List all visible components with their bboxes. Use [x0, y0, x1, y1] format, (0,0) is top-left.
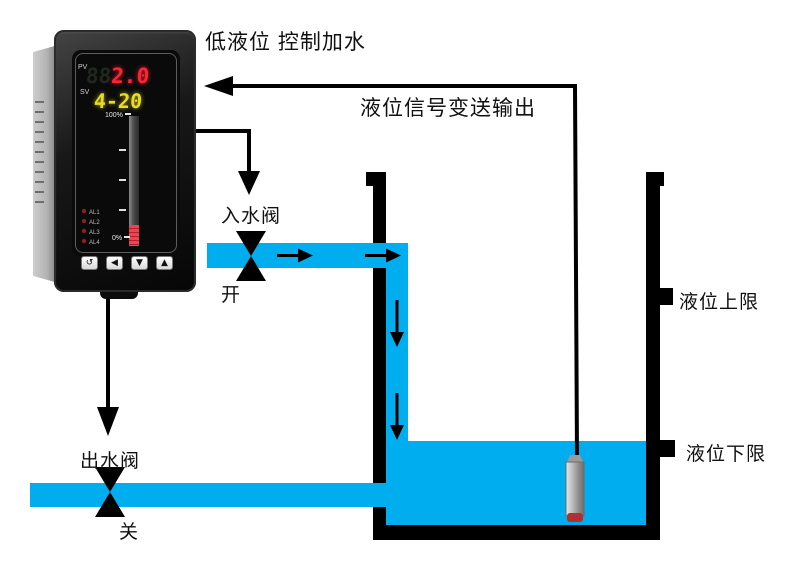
bar-top-label: 100% [105, 112, 131, 119]
led-al2: AL2 [82, 218, 100, 228]
level-control-diagram: PV 882.0 SV 4-20 100% 0% AL1 AL2 AL3 AL4… [0, 0, 790, 566]
bar-bottom-label: 0% [112, 235, 130, 242]
down-button[interactable]: ▼ [131, 256, 148, 270]
lower-limit-label: 液位下限 [686, 439, 766, 466]
al4-led-icon [82, 239, 86, 243]
level-sensor [566, 455, 584, 522]
device-front-panel: PV 882.0 SV 4-20 100% 0% AL1 AL2 AL3 AL4 [72, 50, 180, 256]
signal-output-label: 液位信号变送输出 [360, 92, 536, 122]
signal-wire-vertical [575, 86, 577, 457]
led-al1: AL1 [82, 208, 100, 218]
control-line-outlet [97, 289, 119, 436]
bargraph-fill [129, 225, 139, 246]
outlet-valve-label: 出水阀 [80, 446, 140, 473]
set-cycle-button[interactable]: ↺ [81, 256, 98, 270]
level-controller: PV 882.0 SV 4-20 100% 0% AL1 AL2 AL3 AL4… [54, 30, 196, 292]
tank-right-wall [646, 172, 660, 538]
bargraph-tick [119, 209, 126, 211]
control-arrowhead-down [238, 171, 260, 195]
al3-led-icon [82, 229, 86, 233]
sv-value: 4-20 [93, 89, 143, 113]
bargraph-tick [119, 149, 126, 151]
outlet-arrowhead-down [97, 407, 119, 436]
outlet-pipe [30, 483, 390, 507]
sensor-body [566, 462, 584, 516]
up-button[interactable]: ▲ [156, 256, 173, 270]
inlet-valve-state-label: 开 [221, 280, 241, 307]
tank-water [386, 441, 646, 525]
sensor-tip [567, 513, 583, 522]
lower-limit-marker [654, 440, 675, 457]
pv-value: 2.0 [110, 64, 150, 88]
control-line-inlet [185, 129, 260, 195]
shift-left-button[interactable]: ◀ [106, 256, 123, 270]
led-al4: AL4 [82, 238, 100, 248]
tank-bottom [373, 524, 660, 540]
upper-limit-label: 液位上限 [679, 287, 759, 314]
led-al3: AL3 [82, 228, 100, 238]
al2-led-icon [82, 219, 86, 223]
pv-display: 882.0 [85, 65, 150, 87]
inlet-valve-label: 入水阀 [221, 201, 281, 228]
upper-limit-marker [652, 288, 673, 305]
sv-display: 4-20 [93, 90, 143, 112]
al1-led-icon [82, 209, 86, 213]
bargraph-tick [119, 179, 126, 181]
device-louvers [35, 93, 44, 205]
diagram-title: 低液位 控制加水 [205, 26, 366, 56]
outlet-valve-state-label: 关 [119, 517, 139, 544]
signal-arrowhead-left [204, 76, 233, 96]
bargraph-track [129, 116, 139, 246]
pv-ghost-digits: 88 [85, 64, 112, 88]
device-keypad: ↺ ◀ ▼ ▲ [81, 256, 173, 270]
sv-label: SV [80, 89, 89, 96]
